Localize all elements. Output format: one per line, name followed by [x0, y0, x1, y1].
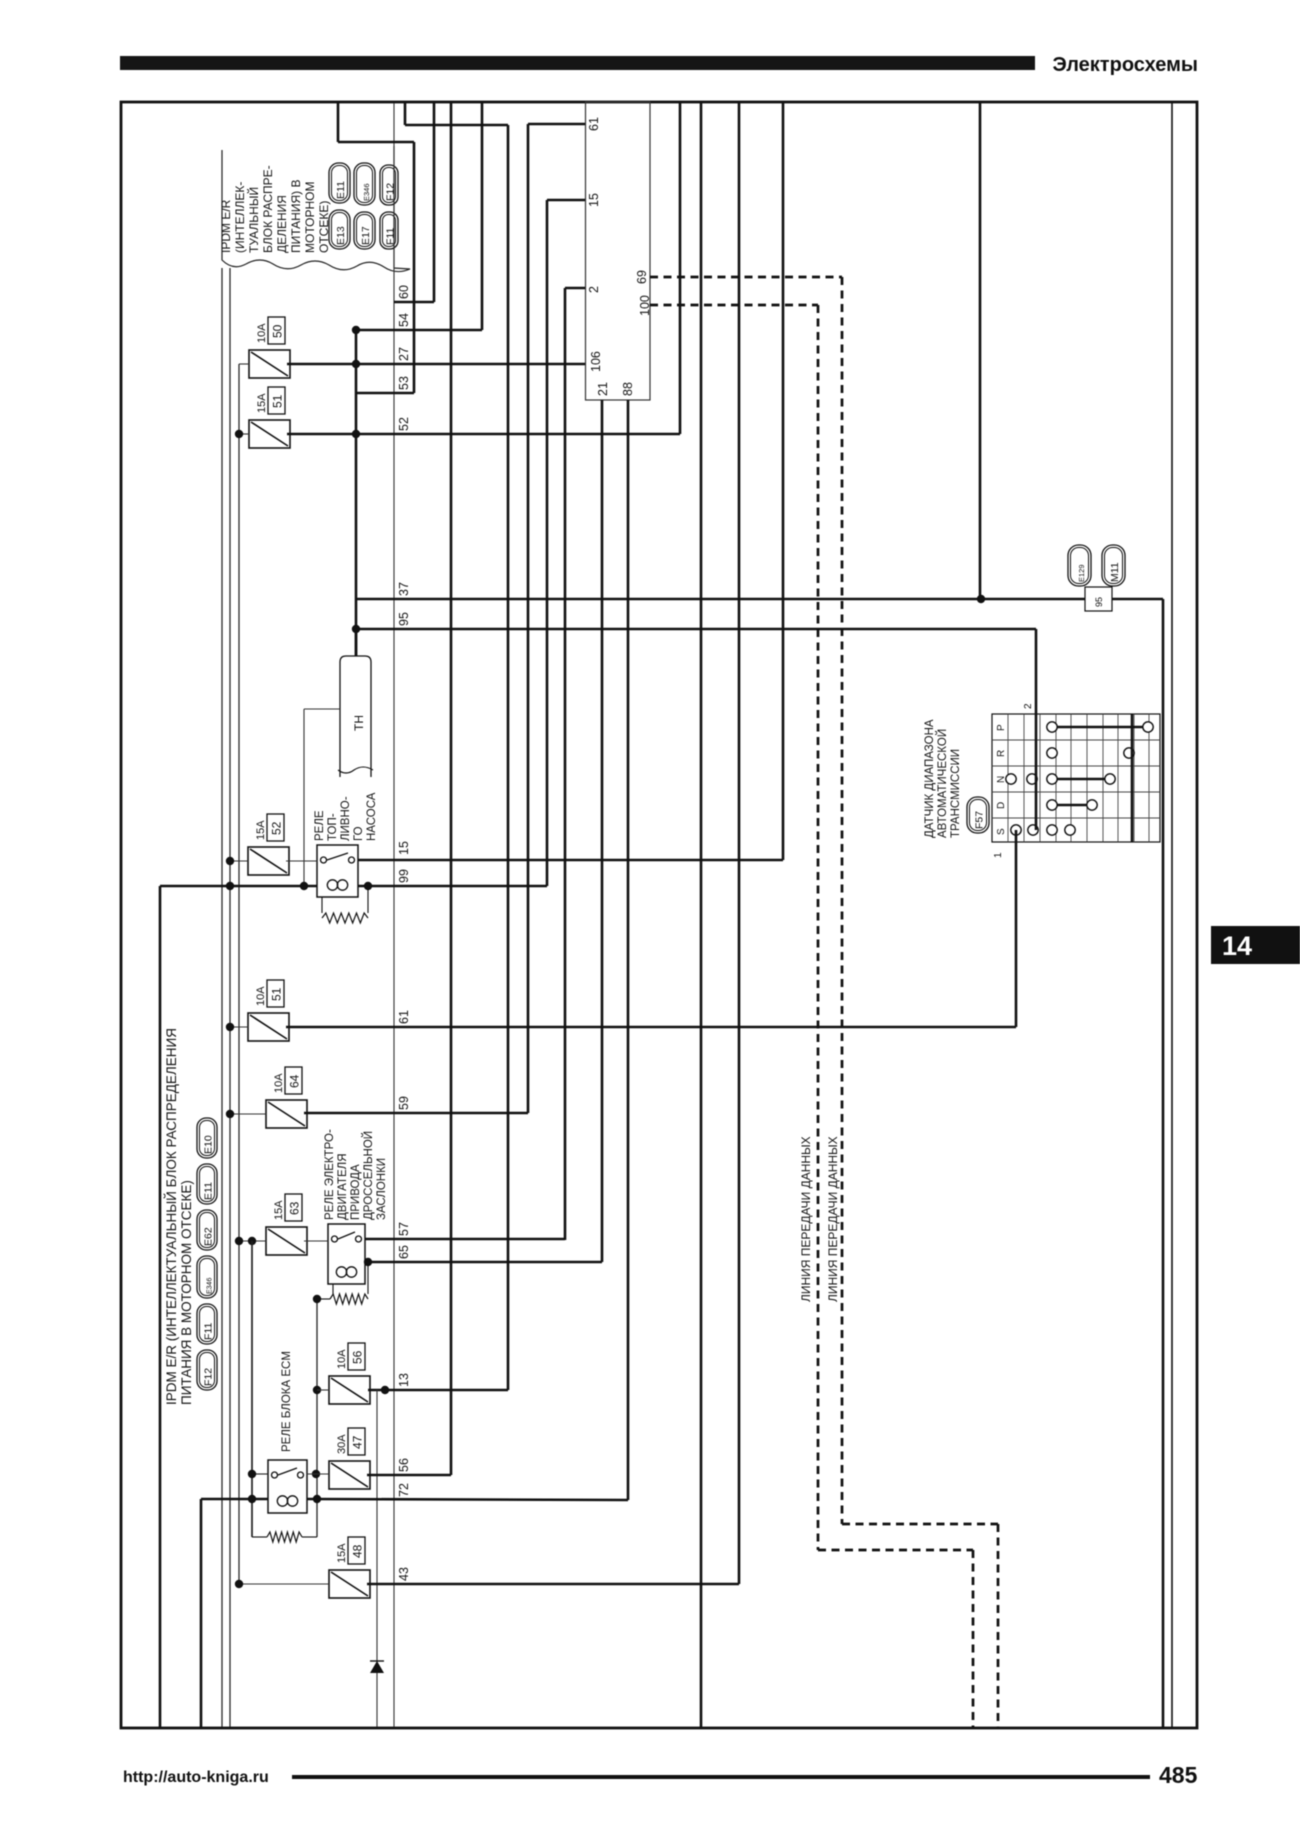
svg-text:(ИНТЕЛЛЕК-: (ИНТЕЛЛЕК-	[233, 182, 247, 253]
svg-text:E62: E62	[203, 1227, 215, 1246]
svg-text:E10: E10	[203, 1135, 215, 1154]
svg-text:M11: M11	[1109, 562, 1121, 582]
svg-text:59: 59	[397, 1096, 411, 1110]
svg-text:27: 27	[397, 347, 411, 361]
svg-text:E11: E11	[203, 1182, 215, 1200]
svg-text:69: 69	[635, 270, 649, 284]
svg-text:60: 60	[397, 285, 411, 299]
svg-text:РЕЛЕ: РЕЛЕ	[314, 810, 326, 841]
svg-text:D: D	[996, 802, 1007, 809]
svg-text:10A: 10A	[255, 986, 267, 1006]
svg-text:14: 14	[1222, 931, 1252, 961]
svg-text:52: 52	[270, 821, 284, 835]
svg-text:ТУАЛЬНЫЙ: ТУАЛЬНЫЙ	[246, 187, 261, 253]
svg-text:106: 106	[589, 351, 603, 372]
svg-text:88: 88	[621, 382, 635, 396]
svg-text:E13: E13	[335, 226, 347, 245]
svg-text:ЛИВНО-: ЛИВНО-	[340, 796, 352, 841]
svg-text:95: 95	[397, 612, 411, 626]
svg-text:ТН: ТН	[352, 715, 366, 731]
svg-text:F12: F12	[203, 1368, 215, 1386]
svg-text:E11: E11	[335, 181, 347, 199]
svg-text:63: 63	[288, 1201, 302, 1215]
svg-text:21: 21	[596, 382, 610, 396]
svg-text:61: 61	[397, 1010, 411, 1024]
svg-text:ТОП-: ТОП-	[327, 813, 339, 841]
svg-text:10A: 10A	[273, 1073, 285, 1093]
svg-text:F11: F11	[385, 228, 397, 245]
svg-text:ГО: ГО	[353, 826, 365, 841]
svg-text:ДАТЧИК ДИАПАЗОНА: ДАТЧИК ДИАПАЗОНА	[924, 719, 936, 838]
svg-text:1: 1	[993, 852, 1004, 858]
svg-text:15A: 15A	[255, 820, 267, 840]
svg-text:15: 15	[587, 193, 601, 207]
svg-text:2: 2	[587, 286, 601, 293]
svg-text:E17: E17	[360, 226, 372, 245]
svg-text:IPDM E/R (ИНТЕЛЛЕКТУАЛЬНЫЙ БЛО: IPDM E/R (ИНТЕЛЛЕКТУАЛЬНЫЙ БЛОК РАСПРЕДЕ…	[164, 1028, 179, 1405]
svg-text:15A: 15A	[336, 1543, 348, 1563]
svg-text:485: 485	[1159, 1762, 1198, 1788]
svg-text:30A: 30A	[336, 1434, 348, 1454]
svg-text:100: 100	[638, 295, 652, 316]
svg-text:РЕЛЕ БЛОКА ECM: РЕЛЕ БЛОКА ECM	[281, 1351, 293, 1452]
svg-text:53: 53	[397, 376, 411, 390]
svg-text:95: 95	[1094, 597, 1104, 607]
svg-text:P: P	[996, 724, 1007, 731]
svg-text:ПИТАНИЯ В МОТОРНОМ ОТСЕКЕ): ПИТАНИЯ В МОТОРНОМ ОТСЕКЕ)	[179, 1180, 194, 1405]
svg-text:64: 64	[288, 1074, 302, 1088]
svg-text:ПРИВОДА: ПРИВОДА	[350, 1164, 362, 1220]
svg-text:37: 37	[397, 582, 411, 596]
svg-text:56: 56	[397, 1458, 411, 1472]
svg-text:2: 2	[1023, 703, 1034, 709]
svg-text:13: 13	[397, 1373, 411, 1387]
svg-text:61: 61	[587, 117, 601, 131]
svg-text:F12: F12	[385, 183, 397, 201]
svg-text:51: 51	[271, 394, 285, 408]
svg-text:65: 65	[397, 1245, 411, 1259]
svg-text:52: 52	[397, 417, 411, 431]
svg-text:АВТОМАТИЧЕСКОЙ: АВТОМАТИЧЕСКОЙ	[936, 729, 949, 838]
svg-text:НАСОСА: НАСОСА	[366, 792, 378, 841]
svg-text:E346: E346	[362, 183, 371, 201]
svg-text:57: 57	[397, 1222, 411, 1236]
svg-text:R: R	[996, 750, 1007, 757]
svg-text:ТРАНСМИССИИ: ТРАНСМИССИИ	[950, 749, 962, 838]
svg-text:ДВИГАТЕЛЯ: ДВИГАТЕЛЯ	[337, 1153, 349, 1220]
svg-text:10A: 10A	[336, 1349, 348, 1369]
svg-text:72: 72	[397, 1483, 411, 1497]
svg-text:РЕЛЕ ЭЛЕКТРО-: РЕЛЕ ЭЛЕКТРО-	[324, 1129, 336, 1220]
svg-text:15A: 15A	[273, 1200, 285, 1220]
svg-text:15A: 15A	[256, 393, 268, 413]
svg-text:99: 99	[397, 869, 411, 883]
svg-text:15: 15	[397, 841, 411, 855]
svg-text:ЛИНИЯ ПЕРЕДАЧИ ДАННЫХ: ЛИНИЯ ПЕРЕДАЧИ ДАННЫХ	[799, 1136, 813, 1302]
svg-text:БЛОК РАСПРЕ-: БЛОК РАСПРЕ-	[261, 165, 275, 253]
svg-text:ДЕЛЕНИЯ: ДЕЛЕНИЯ	[275, 195, 289, 253]
svg-text:47: 47	[351, 1435, 365, 1449]
svg-text:10A: 10A	[256, 323, 268, 343]
svg-text:43: 43	[397, 1567, 411, 1581]
svg-text:51: 51	[270, 987, 284, 1001]
svg-text:56: 56	[351, 1350, 365, 1364]
svg-text:ПИТАНИЯ) В: ПИТАНИЯ) В	[289, 180, 303, 253]
svg-text:ЛИНИЯ ПЕРЕДАЧИ ДАННЫХ: ЛИНИЯ ПЕРЕДАЧИ ДАННЫХ	[826, 1136, 840, 1302]
svg-text:50: 50	[271, 324, 285, 338]
svg-text:МОТОРНОМ: МОТОРНОМ	[303, 182, 317, 253]
svg-text:ДРОССЕЛЬНОЙ: ДРОССЕЛЬНОЙ	[362, 1131, 375, 1220]
svg-text:IPDM E/R: IPDM E/R	[219, 199, 233, 253]
svg-text:F57: F57	[974, 811, 986, 829]
svg-text:Электросхемы: Электросхемы	[1053, 54, 1199, 76]
svg-text:F11: F11	[203, 1323, 215, 1340]
svg-text:http://auto-kniga.ru: http://auto-kniga.ru	[123, 1769, 269, 1786]
svg-text:54: 54	[397, 313, 411, 327]
svg-text:S: S	[996, 828, 1007, 835]
svg-text:ЗАСЛОНКИ: ЗАСЛОНКИ	[376, 1158, 388, 1220]
svg-text:E346: E346	[207, 1278, 214, 1294]
svg-text:E129: E129	[1077, 564, 1086, 582]
svg-text:48: 48	[351, 1544, 365, 1558]
